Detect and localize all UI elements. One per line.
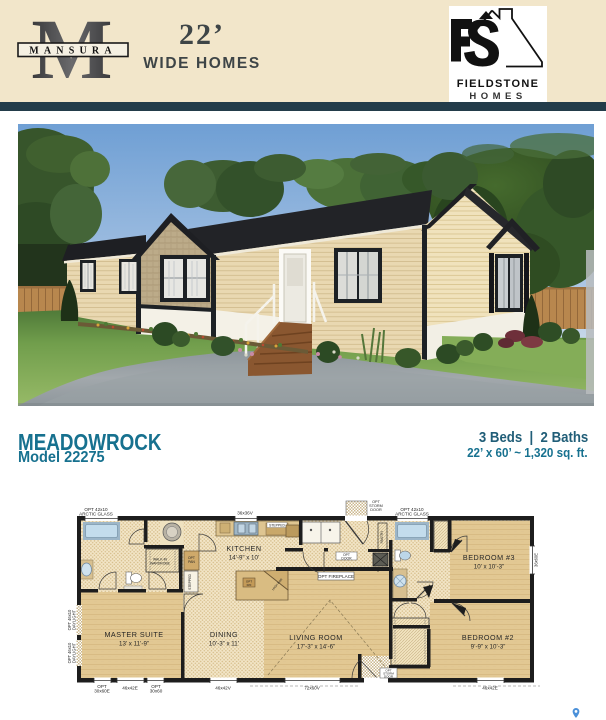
svg-text:MANSURA: MANSURA [29,46,117,57]
svg-text:13’ x 11’-9”: 13’ x 11’-9” [119,641,149,648]
svg-text:PAN: PAN [188,560,195,564]
svg-text:R/F: R/F [247,583,252,587]
svg-text:9’-9” x 10’-3”: 9’-9” x 10’-3” [471,644,506,651]
svg-text:HOMES: HOMES [469,91,526,102]
svg-text:DOOR: DOOR [370,508,382,512]
svg-text:30x60: 30x60 [150,689,163,694]
svg-text:FIELDSTONE: FIELDSTONE [457,78,539,90]
svg-text:36x36V: 36x36V [237,511,254,516]
svg-text:STEPPED: STEPPED [188,574,192,590]
svg-text:DOOR: DOOR [341,556,352,560]
svg-text:KITCHEN: KITCHEN [226,544,261,553]
svg-text:36x60E: 36x60E [534,553,539,567]
svg-text:ARCTIC GLASS: ARCTIC GLASS [79,512,113,517]
svg-text:72x60V: 72x60V [304,686,321,691]
svg-text:ARCTIC GLASS: ARCTIC GLASS [395,512,429,517]
svg-text:14’-9” x 10’: 14’-9” x 10’ [229,555,260,562]
svg-text:DAYLIGHT: DAYLIGHT [72,609,77,630]
svg-text:DOOR: DOOR [384,675,394,679]
svg-text:46x42V: 46x42V [215,686,232,691]
svg-text:30x60E: 30x60E [94,689,110,694]
svg-text:WARDROBE: WARDROBE [150,562,171,566]
svg-text:DINING: DINING [210,630,238,639]
svg-text:17’-3” x 14’-6”: 17’-3” x 14’-6” [297,644,335,651]
svg-text:46x42E: 46x42E [122,686,138,691]
svg-text:10’ x 10’-3”: 10’ x 10’-3” [474,564,504,571]
svg-text:46x42E: 46x42E [482,686,498,691]
svg-text:10’-3” x 11’: 10’-3” x 11’ [209,641,239,648]
svg-text:DAYLIGHT: DAYLIGHT [72,642,77,663]
svg-text:LIVING ROOM: LIVING ROOM [289,633,342,642]
svg-text:BEDROOM #3: BEDROOM #3 [463,553,515,562]
svg-text:MASTER SUITE: MASTER SUITE [104,630,163,639]
svg-text:OPT FIREPLACE: OPT FIREPLACE [318,574,354,579]
svg-text:STEPPED: STEPPED [269,523,285,527]
svg-text:BEDROOM #2: BEDROOM #2 [462,633,514,642]
svg-text:PANTRY: PANTRY [380,530,384,544]
